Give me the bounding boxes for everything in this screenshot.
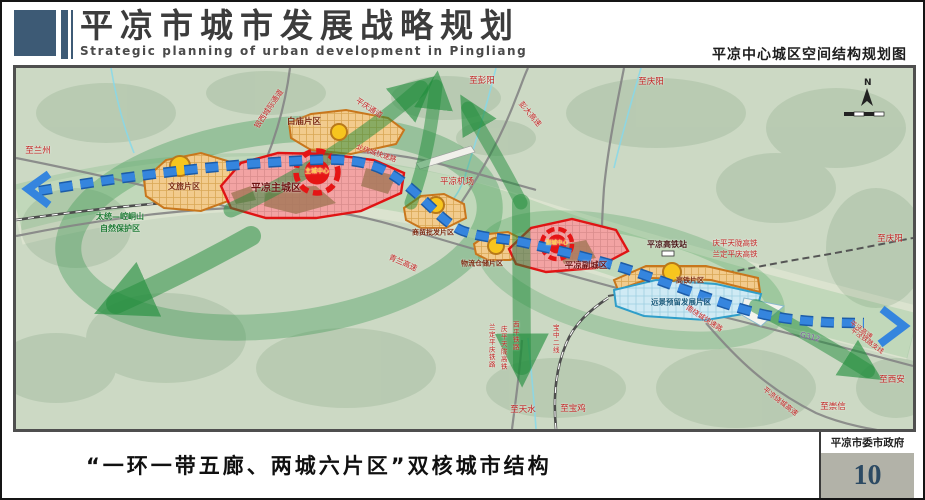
page-number: 10	[821, 453, 914, 499]
org-label: 平凉市委市政府	[821, 432, 914, 453]
map-area: N 至兰州银西城际通道平庆通道白庙片区北绕城快速路至彭阳彭大高速至庆阳平凉机场平…	[13, 65, 916, 432]
header-accent-bar-thin	[71, 10, 73, 59]
scale-bar	[844, 112, 884, 116]
corridor-south	[521, 203, 522, 366]
footer-info-box: 平凉市委市政府 10	[819, 432, 914, 499]
page-title: 平凉市城市发展战略规划	[80, 8, 527, 44]
page-title-en: Strategic planning of urban development …	[80, 44, 527, 58]
map-canvas: N	[16, 68, 913, 429]
header-logo-block	[14, 10, 56, 56]
page: 平凉市城市发展战略规划 Strategic planning of urban …	[0, 0, 925, 500]
map-subtitle: 平凉中心城区空间结构规划图	[712, 44, 907, 64]
footer: “一环一带五廊、两城六片区”双核城市结构 平凉市委市政府 10	[2, 432, 923, 500]
header-accent-bar	[61, 10, 68, 59]
structure-caption: “一环一带五廊、两城六片区”双核城市结构	[86, 450, 552, 480]
compass-n-label: N	[864, 78, 872, 88]
hsr-station-marker	[662, 251, 674, 256]
